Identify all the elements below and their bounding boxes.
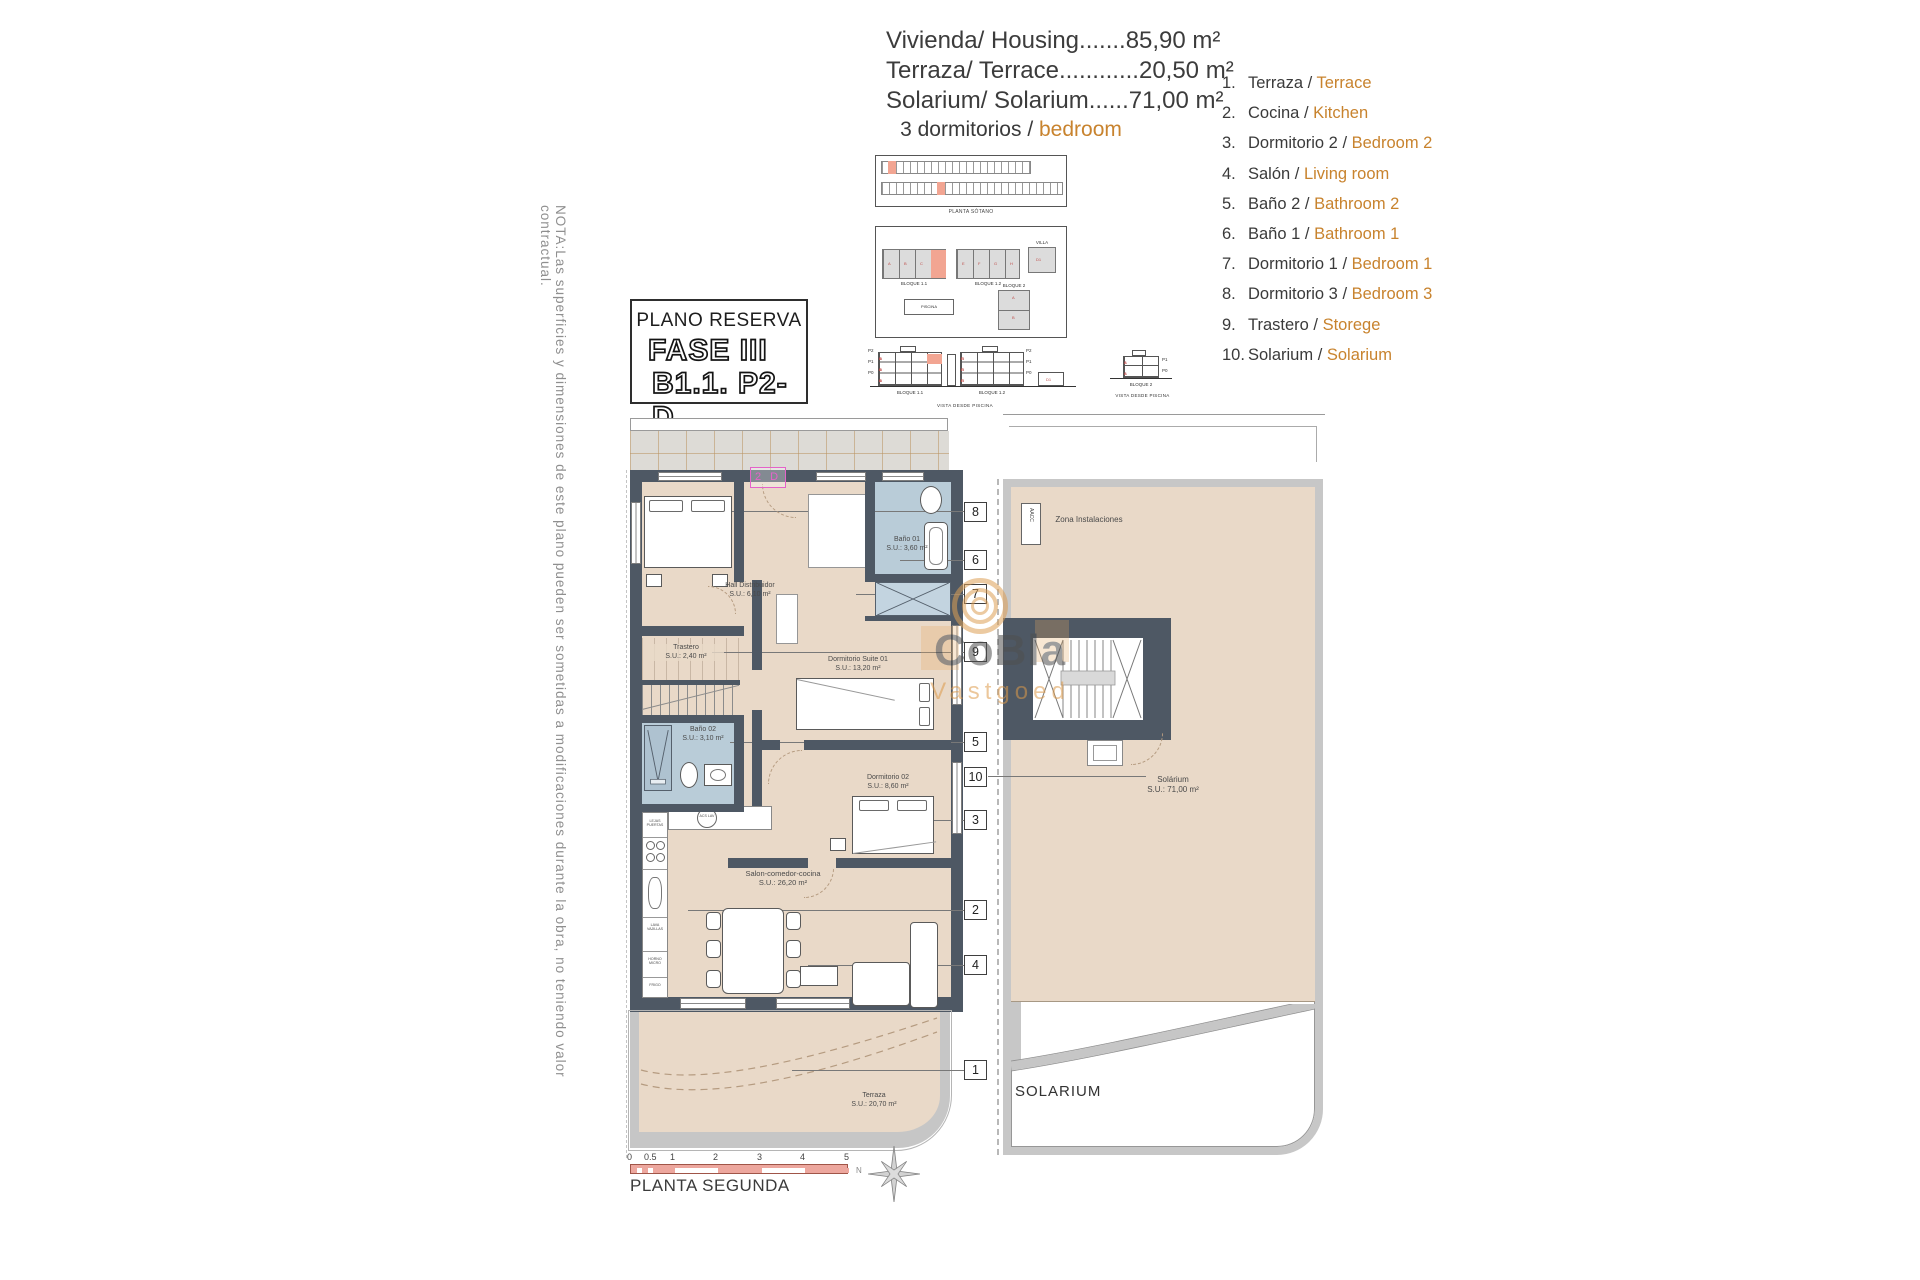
swirl-icon (971, 597, 989, 615)
wall (762, 740, 780, 750)
scale-tick: 0 (627, 1152, 632, 1162)
callout-3: 3 (964, 810, 987, 830)
leader-line (792, 1070, 964, 1071)
nightstand (646, 574, 662, 587)
lower-terrace-curve (1011, 1004, 1315, 1149)
zona-instalaciones-label: Zona Instalaciones (1047, 515, 1131, 525)
kitchen-column: LEJAS PUERTAS LAVA VAJILLAS HORNO MICRO … (642, 812, 668, 998)
stair-landing-step (1087, 740, 1123, 766)
wall (804, 740, 951, 750)
parking-row (881, 161, 1031, 174)
villa-elevation: D1 (1038, 372, 1064, 386)
chair (706, 940, 721, 958)
chair (706, 970, 721, 988)
solarium-frame: AACC Zona Instalaciones (1003, 479, 1323, 1155)
scale-tick: 5 (844, 1152, 849, 1162)
area-summary: Vivienda/ Housing.......85,90 m² Terraza… (886, 26, 1166, 116)
living-room-label: Salon-comedor-cocinaS.U.: 26,20 m² (716, 870, 850, 887)
wall (642, 680, 740, 685)
reserve-fase: FASE III (648, 334, 768, 368)
legend-item-9: 9.Trastero / Storege (1222, 316, 1380, 335)
boundary-line (1316, 426, 1317, 462)
legend-item-3: 3.Dormitorio 2 / Bedroom 2 (1222, 134, 1432, 153)
bloque2-elevation: AB AB (1123, 356, 1159, 378)
floor-label: P1 (1026, 359, 1032, 364)
scale-tick: 4 (800, 1152, 805, 1162)
hob-burner-icon (646, 841, 655, 850)
legend-item-10: 10.Solarium / Solarium (1222, 346, 1392, 365)
villa-label: VILLA (1028, 240, 1056, 245)
villa-block: D1 (1028, 247, 1056, 273)
wall (642, 626, 744, 636)
stairs (642, 685, 740, 715)
chair (786, 912, 801, 930)
sofa (910, 922, 938, 1008)
window (816, 472, 866, 481)
terrace-label: TerrazaS.U.: 20,70 m² (819, 1092, 929, 1109)
scale-tick: 2 (713, 1152, 718, 1162)
aacc-unit: AACC (1021, 503, 1041, 545)
sink-basin-icon (648, 877, 662, 909)
hob-burner-icon (656, 853, 665, 862)
window (631, 502, 641, 564)
chair (786, 970, 801, 988)
floor-label: P2 (1026, 348, 1032, 353)
bedrooms-en: bedroom (1039, 118, 1122, 141)
hall-label: Hall DistribuidorS.U.: 6,10 m² (714, 582, 786, 599)
wall (734, 715, 744, 812)
housing-area-line: Vivienda/ Housing.......85,90 m² (886, 26, 1166, 56)
parking-highlight (937, 182, 945, 195)
callout-10: 10 (964, 767, 987, 787)
parking-highlight (888, 161, 896, 174)
unit-tag: 2 D (750, 467, 786, 488)
ground-line (870, 386, 1076, 387)
kitchen-shelves-label: LEJAS PUERTAS (643, 819, 667, 827)
parking-caption: PLANTA SÓTANO (875, 209, 1067, 215)
scale-bar-strip (630, 1164, 848, 1174)
construction-line (626, 470, 627, 1158)
legend-item-6: 6.Baño 1 / Bathroom 1 (1222, 225, 1399, 244)
callout-2: 2 (964, 900, 987, 920)
shower-icon (644, 725, 672, 791)
window (952, 762, 962, 834)
terrace: TerrazaS.U.: 20,70 m² (630, 1012, 950, 1148)
storage-label: TrasteroS.U.: 2,40 m² (648, 644, 724, 661)
room-legend: 1.Terraza / Terrace 2.Cocina / Kitchen 3… (1222, 74, 1462, 374)
legend-item-7: 7.Dormitorio 1 / Bedroom 1 (1222, 255, 1432, 274)
bloque11-block: ABC (882, 249, 946, 279)
void (808, 494, 866, 568)
site-plan: ABC BLOQUE 1.1 EFGH BLOQUE 1.2 VILLA D1 … (875, 226, 1067, 338)
dining-table (722, 908, 784, 994)
reserve-title: PLANO RESERVA (632, 310, 806, 332)
wall (865, 574, 951, 582)
wall (865, 482, 875, 582)
bloque11-caption: BLOQUE 1.1 (878, 390, 942, 395)
callout-1: 1 (964, 1060, 987, 1080)
parking-plan (875, 155, 1067, 207)
bloque12-elevation: EFGH EFGH EFGH (960, 352, 1024, 386)
solarium-area-line: Solarium/ Solarium......71,00 m² (886, 86, 1166, 116)
wall (836, 858, 951, 868)
callout-6: 6 (964, 550, 987, 570)
floor-label: P1 (868, 359, 874, 364)
parking-row (881, 182, 1063, 195)
nightstand (830, 838, 846, 851)
scale-tick: 1 (670, 1152, 675, 1162)
window (882, 472, 924, 481)
wall (642, 715, 744, 723)
bedrooms-line: 3 dormitorios / bedroom (876, 118, 1146, 142)
floorplan-sheet: NOTA:Las superficies y dimensiones de es… (0, 0, 1920, 1280)
legend-item-2: 2.Cocina / Kitchen (1222, 104, 1368, 123)
stair-shaft (947, 354, 956, 386)
dishwasher-label: LAVA VAJILLAS (643, 923, 667, 931)
floor-label: P2 (868, 348, 874, 353)
wall (734, 482, 744, 582)
window (658, 472, 722, 481)
bloque2-block: AB (998, 290, 1030, 330)
chair (786, 940, 801, 958)
toilet-icon (920, 486, 942, 514)
callout-5: 5 (964, 732, 987, 752)
floor-title: PLANTA SEGUNDA (630, 1176, 790, 1196)
fridge-label: FRIGO (643, 983, 667, 987)
solarium-caption: SOLARIUM (1015, 1083, 1101, 1100)
hob-burner-icon (646, 853, 655, 862)
floor-label: P0 (1026, 370, 1032, 375)
aacc-label: AACC (1028, 508, 1034, 522)
bedrooms-es: 3 dormitorios / (900, 118, 1033, 141)
compass-rose-icon (868, 1146, 920, 1202)
terrace-door (776, 998, 850, 1009)
bloque2-caption: BLOQUE 2 (1123, 382, 1159, 387)
terrace-awning-lines (639, 1012, 939, 1130)
wall (642, 804, 744, 812)
callout-8: 8 (964, 502, 987, 522)
chair (706, 912, 721, 930)
callout-4: 4 (964, 955, 987, 975)
boundary-line (1003, 414, 1325, 415)
watermark-sub: Vastgoed (905, 678, 1095, 706)
double-bed (644, 496, 732, 568)
bloque11-label: BLOQUE 1.1 (882, 281, 946, 286)
vista-caption: VISTA DESDE PISCINA (1095, 393, 1190, 398)
solarium-plan: AACC Zona Instalaciones (1003, 410, 1329, 1170)
coffee-table (800, 966, 838, 986)
floor-label: P1 (1162, 357, 1168, 362)
watermark: CoBla Vastgoed (905, 592, 1095, 717)
floor-label: P0 (868, 370, 874, 375)
bedroom2-label: Dormitorio 02S.U.: 8,60 m² (836, 774, 940, 791)
bedroom2-bed (852, 796, 934, 854)
legend-item-1: 1.Terraza / Terrace (1222, 74, 1372, 93)
oven-label: HORNO MICRO (643, 957, 667, 965)
sofa-chaise (852, 962, 910, 1006)
adjacent-strip (630, 418, 948, 431)
boundary-dashed (997, 479, 999, 1155)
piscina-block: PISCINA (904, 299, 954, 315)
void (776, 594, 798, 644)
solarium-room-label: SoláriumS.U.: 71,00 m² (1123, 775, 1223, 795)
bloque12-caption: BLOQUE 1.2 (960, 390, 1024, 395)
legend-item-8: 8.Dormitorio 3 / Bedroom 3 (1222, 285, 1432, 304)
plano-reserva-box: PLANO RESERVA FASE III B1.1. P2-D (630, 299, 808, 404)
solarium-roof-floor (1011, 487, 1315, 1002)
bathroom2-label: Baño 02S.U.: 3,10 m² (672, 726, 734, 743)
sink-icon (704, 764, 732, 786)
watermark-name: CoBla (905, 626, 1095, 676)
bathroom1-label: Baño 01S.U.: 3,60 m² (876, 536, 938, 553)
bloque11-elevation: ABCD ABCD ABCD (878, 352, 942, 386)
terrace-area-line: Terraza/ Terrace............20,50 m² (886, 56, 1166, 86)
boundary-line (1009, 426, 1317, 427)
bloque2-label: BLOQUE 2 (994, 283, 1034, 288)
elevation-diagrams: P2 P1 P0 ABCD ABCD ABCD EFGH EFGH EFGH P… (870, 346, 1200, 410)
nota-disclaimer: NOTA:Las superficies y dimensiones de es… (546, 205, 568, 1125)
vista-caption: VISTA DESDE PISCINA (900, 403, 1030, 408)
main-floor-plan: 2 D (628, 410, 990, 1200)
wall (752, 710, 762, 806)
hob-burner-icon (656, 841, 665, 850)
suite-label: Dormitorio Suite 01S.U.: 13,20 m² (810, 656, 906, 673)
north-label: N (856, 1166, 862, 1175)
legend-item-4: 4.Salón / Living room (1222, 165, 1389, 184)
wall (728, 858, 808, 868)
terrace-door (680, 998, 746, 1009)
highlighted-unit (931, 250, 946, 278)
scale-tick: 0.5 (644, 1152, 657, 1162)
legend-item-5: 5.Baño 2 / Bathroom 2 (1222, 195, 1399, 214)
bloque12-block: EFGH (956, 249, 1020, 279)
floor-label: P0 (1162, 368, 1168, 373)
scale-tick: 3 (757, 1152, 762, 1162)
toilet-icon (680, 762, 698, 788)
common-corridor (630, 431, 949, 470)
